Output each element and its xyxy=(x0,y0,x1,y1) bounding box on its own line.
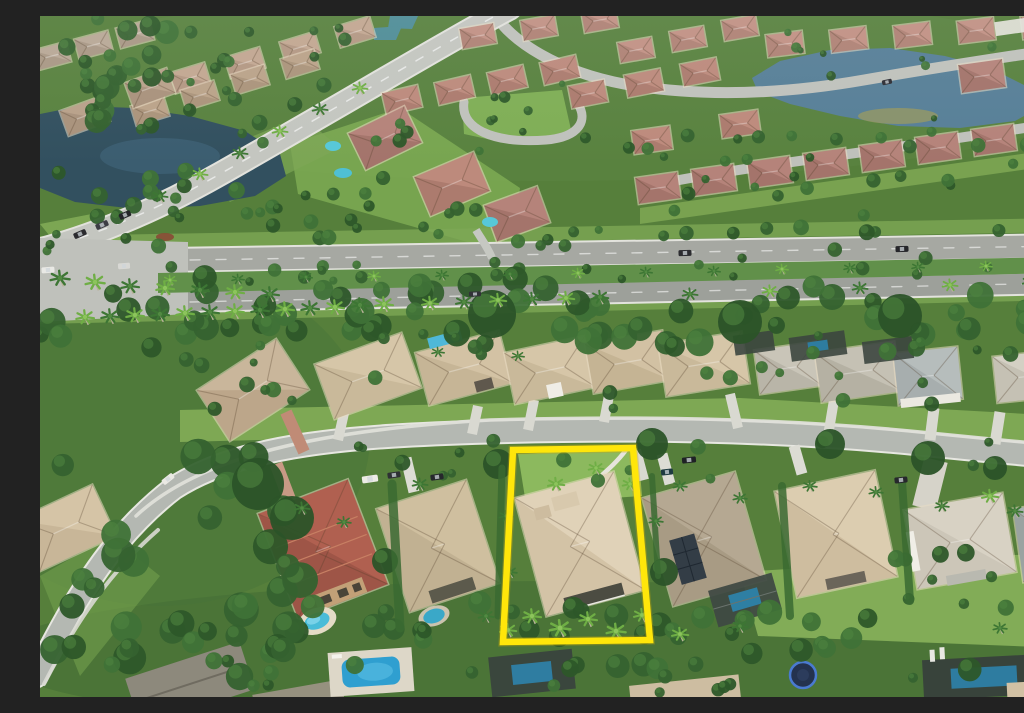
car xyxy=(41,267,54,274)
driveway xyxy=(472,406,478,434)
aerial-photo-svg xyxy=(40,16,1024,697)
atmosphere xyxy=(40,16,1024,166)
car xyxy=(469,291,481,296)
driveway xyxy=(930,408,934,440)
trampoline xyxy=(790,662,816,688)
aerial-photo: Aerial photo of a suburban residential n… xyxy=(40,16,1024,697)
car xyxy=(895,246,908,252)
small-house xyxy=(690,163,739,198)
small-house xyxy=(634,171,683,206)
car xyxy=(661,468,674,475)
driveway xyxy=(794,446,802,474)
driveway xyxy=(528,400,534,430)
driveway xyxy=(995,412,1000,444)
pool-b2 xyxy=(328,647,415,697)
car xyxy=(678,250,691,256)
car xyxy=(118,263,130,270)
haze-overlay xyxy=(40,16,1024,166)
